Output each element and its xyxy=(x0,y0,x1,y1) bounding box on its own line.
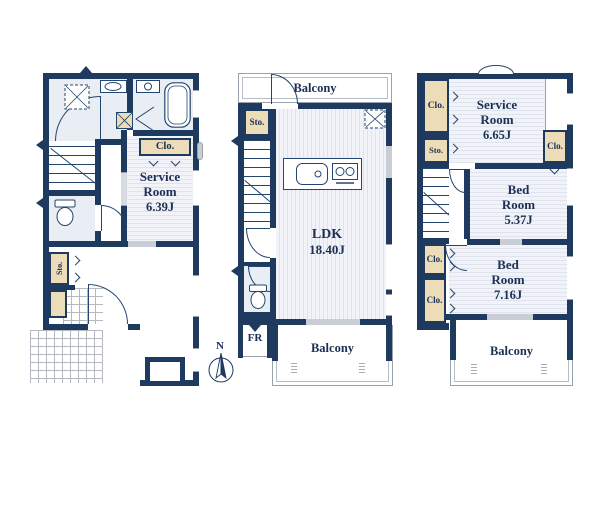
floor-plan-canvas: Clo. Sto. ServiceRoom6.39J xyxy=(0,0,600,512)
washing-machine-pan xyxy=(64,84,90,110)
shoe-cabinet xyxy=(49,290,67,318)
toilet xyxy=(248,284,268,310)
window xyxy=(128,241,156,247)
wall xyxy=(43,73,199,79)
door-opening xyxy=(270,228,276,258)
slope-mark xyxy=(359,363,365,373)
stair-line xyxy=(423,192,449,215)
storage-label: Sto. xyxy=(425,140,447,161)
compass-icon xyxy=(206,351,236,385)
window xyxy=(567,93,573,125)
window xyxy=(567,168,573,206)
wall-vent xyxy=(249,325,261,332)
window xyxy=(386,244,392,290)
bedroom2-label: BedRoom7.16J xyxy=(449,252,567,308)
storage-label: Sto. xyxy=(246,111,268,134)
window xyxy=(500,239,522,245)
balcony-post xyxy=(386,325,392,361)
wall xyxy=(270,109,276,319)
stair-line xyxy=(244,180,271,203)
window xyxy=(193,170,199,206)
entrance-door-leaf xyxy=(88,284,89,324)
closet-label: Clo. xyxy=(141,140,189,154)
closet-label: Clo. xyxy=(425,81,447,131)
fr-label: FR xyxy=(240,331,270,346)
closet: Clo. xyxy=(423,244,446,275)
stair-line xyxy=(50,148,96,184)
door-leaf xyxy=(100,96,101,141)
closet: Clo. xyxy=(139,138,191,156)
bath-sink xyxy=(136,80,160,93)
stove xyxy=(332,163,358,185)
staircase xyxy=(423,168,449,238)
slope-mark xyxy=(541,364,547,374)
balcony: Balcony xyxy=(450,320,573,386)
wall-vent xyxy=(231,266,238,276)
balcony-door-leaf xyxy=(271,74,272,104)
closet-label: Clo. xyxy=(425,280,444,321)
water-heater xyxy=(197,142,203,160)
closet-label: Clo. xyxy=(545,132,565,161)
wall xyxy=(100,139,127,145)
vanity-sink xyxy=(100,80,127,93)
storage: Sto. xyxy=(49,252,69,285)
wall-vent xyxy=(231,136,238,146)
staircase xyxy=(49,146,95,190)
door-leaf xyxy=(101,205,102,231)
closet-label: Clo. xyxy=(425,246,444,273)
balcony-post xyxy=(450,320,456,360)
staircase xyxy=(244,140,270,230)
balcony-label: Balcony xyxy=(239,74,391,102)
roof-vent-arc xyxy=(478,65,514,74)
wall xyxy=(386,109,392,325)
bedroom1-label: BedRoom5.37J xyxy=(470,178,567,232)
balcony-label: Balcony xyxy=(451,342,572,360)
wall xyxy=(128,324,140,330)
window xyxy=(567,256,573,300)
door-arc xyxy=(246,228,270,258)
closet: Clo. xyxy=(423,278,446,323)
balcony-bottom: Balcony xyxy=(272,325,393,386)
window xyxy=(193,90,199,118)
service-room-label: ServiceRoom6.39J xyxy=(127,164,193,220)
window xyxy=(193,348,199,372)
kitchen-sink xyxy=(296,163,328,185)
approach-tile-floor xyxy=(30,330,103,383)
service-room-label: ServiceRoom6.65J xyxy=(449,93,545,147)
wall xyxy=(238,312,276,319)
balcony-post xyxy=(567,320,573,360)
storage: Sto. xyxy=(423,138,449,163)
toilet xyxy=(53,199,77,227)
wall xyxy=(193,79,199,385)
window xyxy=(386,294,392,316)
closet: Clo. xyxy=(543,130,567,163)
door-leaf xyxy=(246,228,270,229)
floor-hatch xyxy=(116,112,133,129)
wall xyxy=(43,324,88,330)
storage: Sto. xyxy=(244,109,270,136)
wall xyxy=(43,190,101,196)
slope-mark xyxy=(291,363,297,373)
window xyxy=(386,146,392,178)
balcony-post xyxy=(272,325,278,361)
fr-threshold xyxy=(243,356,267,357)
door-leaf xyxy=(445,245,467,246)
entrance-porch xyxy=(145,357,185,386)
roof-vent xyxy=(80,66,92,73)
wall-vent xyxy=(36,198,43,208)
window-nook xyxy=(545,79,567,130)
balcony-top: Balcony xyxy=(238,73,392,103)
ldk-label: LDK18.40J xyxy=(298,224,356,260)
slope-mark xyxy=(471,364,477,374)
wall xyxy=(43,241,199,247)
bathtub xyxy=(164,82,191,128)
bath-folding-door xyxy=(134,106,156,132)
refrigerator-space xyxy=(364,109,386,129)
ldk-floor xyxy=(276,109,386,319)
wall xyxy=(417,323,449,330)
closet: Clo. xyxy=(423,79,449,133)
gate-opening xyxy=(193,275,199,317)
door-leaf xyxy=(248,266,270,267)
door-leaf xyxy=(449,169,465,170)
wall-vent xyxy=(36,140,43,150)
door-arc xyxy=(449,169,465,193)
entrance-door-arc xyxy=(88,284,128,324)
balcony-label: Balcony xyxy=(273,339,392,357)
